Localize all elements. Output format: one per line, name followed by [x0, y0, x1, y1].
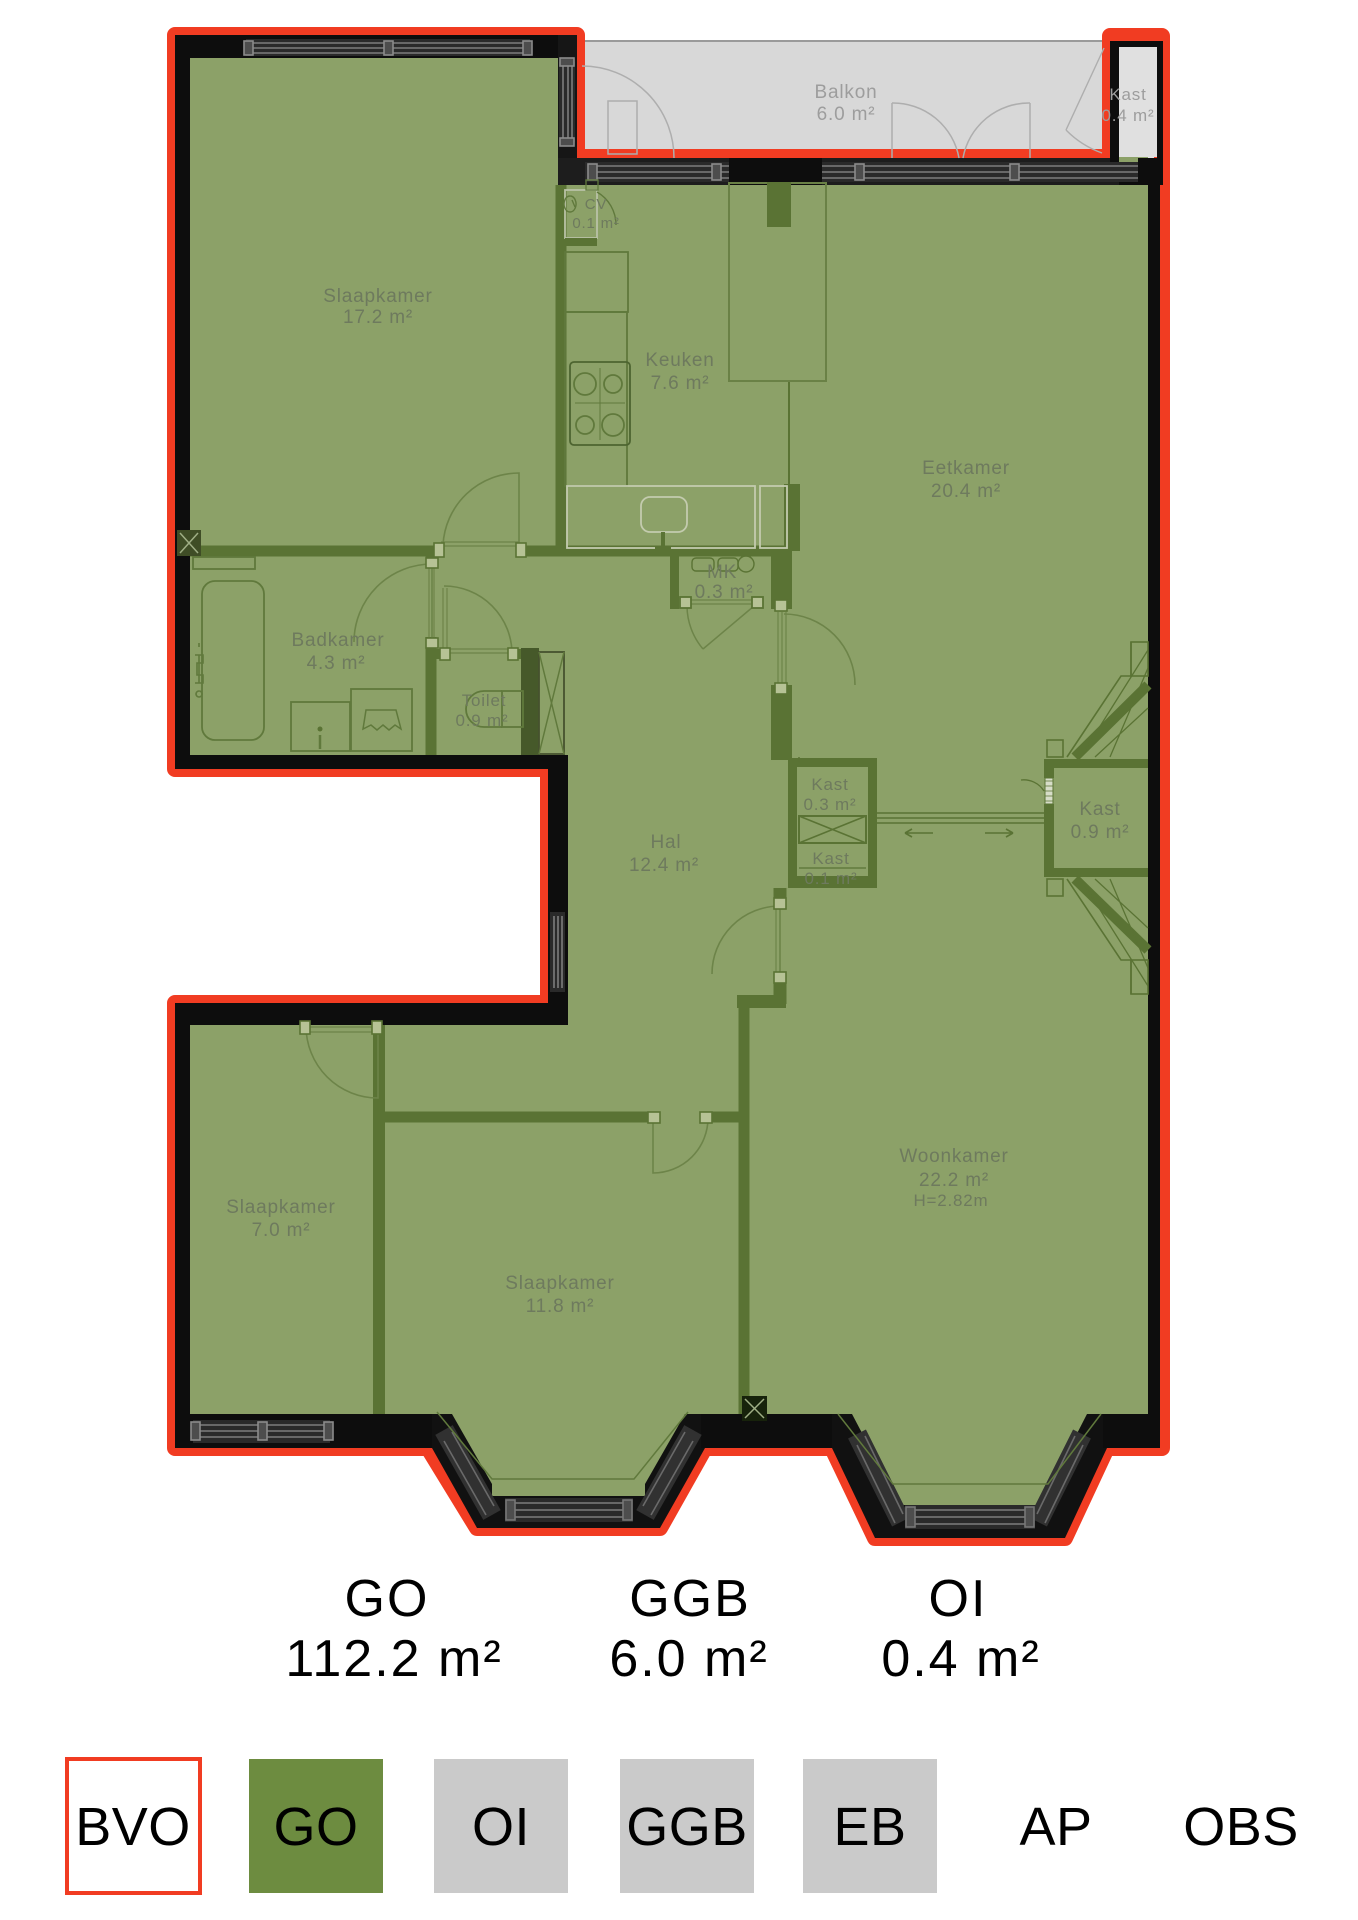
svg-text:0.1 m²: 0.1 m² — [572, 215, 619, 232]
svg-text:GO: GO — [345, 1570, 430, 1628]
svg-text:11.8 m²: 11.8 m² — [526, 1296, 595, 1317]
svg-text:0.1 m²: 0.1 m² — [805, 869, 858, 888]
svg-text:6.0 m²: 6.0 m² — [609, 1630, 768, 1688]
svg-text:GGB: GGB — [629, 1570, 751, 1628]
svg-text:H=2.82m: H=2.82m — [913, 1191, 988, 1210]
svg-text:Slaapkamer: Slaapkamer — [323, 286, 432, 307]
svg-text:Badkamer: Badkamer — [292, 630, 385, 651]
svg-text:Hal: Hal — [651, 832, 682, 853]
svg-text:Slaapkamer: Slaapkamer — [226, 1197, 335, 1218]
svg-text:20.4 m²: 20.4 m² — [931, 481, 1001, 502]
svg-text:Slaapkamer: Slaapkamer — [505, 1273, 614, 1294]
svg-text:MK: MK — [707, 562, 737, 583]
svg-text:CV: CV — [585, 196, 607, 213]
svg-text:GGB: GGB — [626, 1797, 748, 1857]
svg-text:Kast: Kast — [1109, 85, 1146, 104]
svg-text:EB: EB — [833, 1797, 906, 1857]
svg-text:112.2 m²: 112.2 m² — [285, 1630, 502, 1688]
svg-text:0.4 m²: 0.4 m² — [881, 1630, 1040, 1688]
svg-text:0.9 m²: 0.9 m² — [456, 711, 509, 730]
svg-text:7.0 m²: 7.0 m² — [252, 1220, 311, 1241]
svg-text:Woonkamer: Woonkamer — [899, 1146, 1008, 1167]
svg-text:22.2 m²: 22.2 m² — [919, 1170, 989, 1191]
svg-text:Balkon: Balkon — [815, 82, 878, 103]
svg-text:GO: GO — [273, 1797, 358, 1857]
svg-text:Eetkamer: Eetkamer — [922, 458, 1010, 479]
svg-text:0.9 m²: 0.9 m² — [1071, 822, 1130, 843]
svg-text:17.2 m²: 17.2 m² — [343, 307, 413, 328]
svg-text:0.3 m²: 0.3 m² — [695, 582, 754, 603]
svg-text:0.3 m²: 0.3 m² — [804, 795, 857, 814]
svg-text:12.4 m²: 12.4 m² — [629, 855, 699, 876]
svg-text:OI: OI — [472, 1797, 530, 1857]
svg-text:4.3 m²: 4.3 m² — [307, 653, 366, 674]
svg-text:OBS: OBS — [1183, 1797, 1299, 1857]
svg-text:AP: AP — [1019, 1797, 1092, 1857]
svg-text:Kast: Kast — [812, 849, 849, 868]
svg-text:Keuken: Keuken — [645, 350, 714, 371]
svg-text:OI: OI — [929, 1570, 988, 1628]
svg-text:Kast: Kast — [1079, 799, 1120, 820]
svg-text:BVO: BVO — [75, 1797, 191, 1857]
svg-text:6.0 m²: 6.0 m² — [817, 104, 876, 125]
svg-text:Kast: Kast — [811, 775, 848, 794]
svg-text:Toilet: Toilet — [462, 691, 507, 710]
svg-text:7.6 m²: 7.6 m² — [651, 373, 710, 394]
svg-text:0.4 m²: 0.4 m² — [1102, 106, 1155, 125]
